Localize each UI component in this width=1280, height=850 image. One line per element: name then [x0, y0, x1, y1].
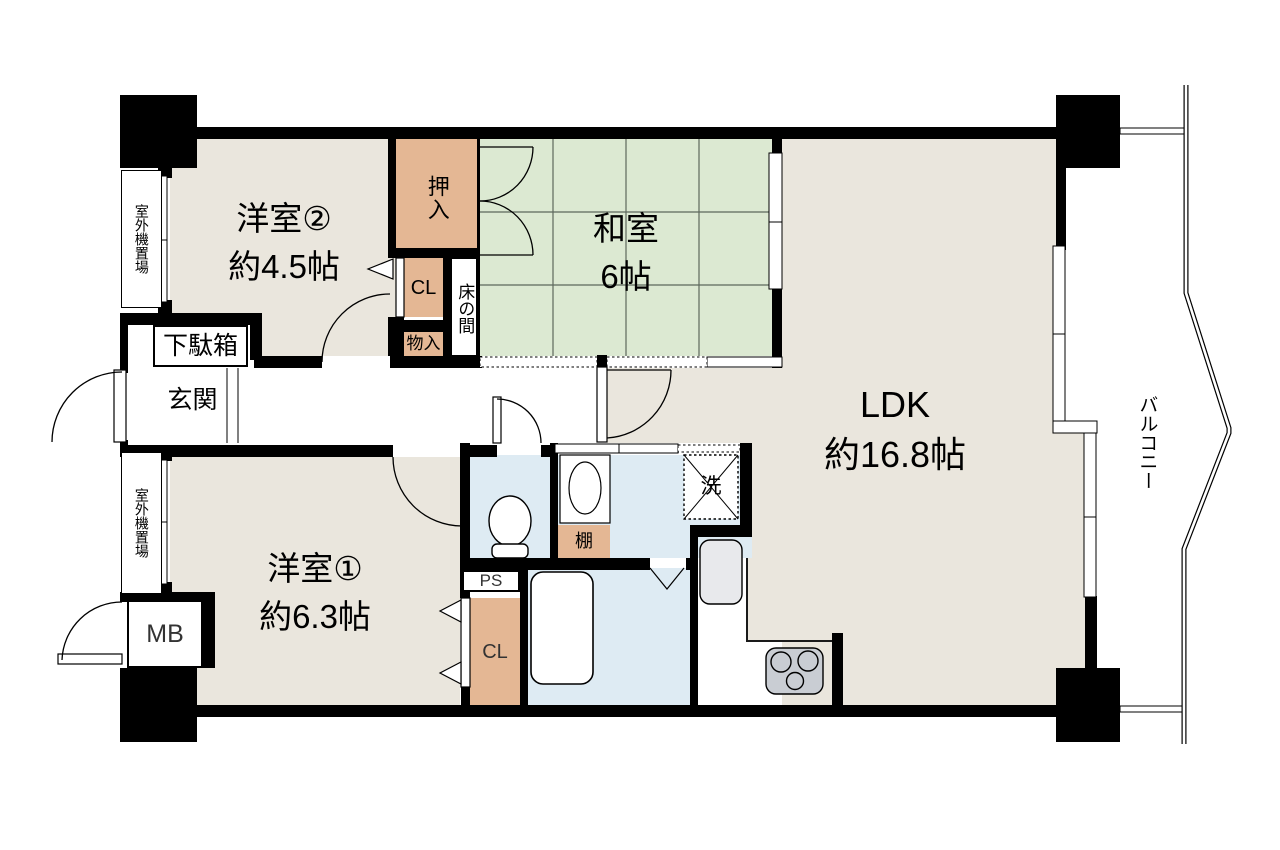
floor-plan: 洋室② 約4.5帖 和室 6帖 LDK 約16.8帖 洋室① 約6.3帖 押入 …	[0, 0, 1280, 850]
room-name: LDK	[742, 384, 1048, 426]
room-label-western2: 洋室② 約4.5帖	[170, 192, 398, 288]
room-size: 約16.8帖	[742, 426, 1048, 478]
room-label-japanese: 和室 6帖	[480, 202, 772, 298]
room-size: 約4.5帖	[170, 240, 398, 288]
label-closet-upper: CL	[404, 258, 443, 317]
room-label-ldk: LDK 約16.8帖	[742, 384, 1048, 478]
label-balcony: バルコニー	[1133, 390, 1159, 495]
room-name: 和室	[480, 202, 772, 250]
label-meter-box: MB	[127, 600, 203, 668]
label-entrance: 玄関	[145, 383, 240, 417]
label-outdoor-unit-lower: 室外機置場	[121, 456, 162, 590]
room-name: 洋室②	[170, 192, 398, 240]
label-pipe-space: PS	[462, 570, 520, 592]
room-size: 6帖	[480, 250, 772, 298]
label-outdoor-unit-upper: 室外機置場	[121, 174, 162, 304]
room-size: 約6.3帖	[170, 590, 460, 638]
label-storage: 物入	[402, 332, 445, 356]
label-laundry: 洗	[684, 462, 738, 512]
label-oshiire: 押入	[396, 155, 477, 240]
label-closet-lower: CL	[470, 598, 520, 705]
label-shelf: 棚	[558, 525, 610, 558]
room-name: 洋室①	[170, 542, 460, 590]
room-label-western1: 洋室① 約6.3帖	[170, 542, 460, 638]
plan-linework	[0, 0, 1280, 850]
label-tokonoma: 床の間	[451, 262, 477, 354]
label-shoe-cabinet: 下駄箱	[153, 325, 248, 367]
